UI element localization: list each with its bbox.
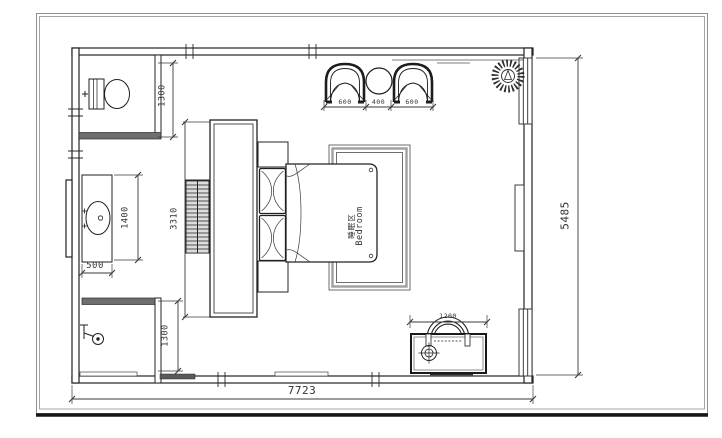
side-table xyxy=(366,68,392,94)
dim-wardrobe-length: 3310 xyxy=(171,197,182,241)
nightstand-top xyxy=(258,142,288,167)
dim-armchair-left: 600 xyxy=(330,99,360,106)
wc-glass-partition xyxy=(79,133,161,140)
dim-shower-depth: 1300 xyxy=(162,314,173,358)
floorplan-canvas: 1300 1400 500 1300 3310 600 400 600 1200… xyxy=(0,0,722,438)
wall-top xyxy=(72,48,533,55)
window-upper xyxy=(519,58,532,124)
armchair-right xyxy=(394,64,432,102)
room-label: 睡眠区 Bedroom xyxy=(348,186,372,266)
wall-bottom xyxy=(72,376,533,383)
room-label-en: Bedroom xyxy=(356,186,365,266)
wardrobe xyxy=(210,120,257,317)
dim-armchair-right: 600 xyxy=(397,99,427,106)
pillow-2 xyxy=(260,216,286,261)
dim-wc-depth: 1300 xyxy=(159,74,170,118)
dim-side-table: 400 xyxy=(364,99,393,106)
window-lower xyxy=(519,309,532,376)
dim-overall-width: 7723 xyxy=(267,385,337,398)
pillow-1 xyxy=(260,169,286,214)
wall-left xyxy=(72,48,79,383)
nightstand-bottom xyxy=(258,261,288,292)
dim-vanity-width: 500 xyxy=(80,262,110,273)
dim-overall-depth: 5485 xyxy=(560,181,573,251)
sink-drain xyxy=(98,216,102,220)
toilet-bowl xyxy=(105,80,130,109)
wall-pilaster xyxy=(515,185,524,251)
toilet-tank xyxy=(89,79,104,109)
radiator-unit xyxy=(186,180,209,253)
dressing-table xyxy=(411,334,486,373)
wall-left-pier xyxy=(66,180,72,257)
dim-vanity-length: 1400 xyxy=(122,196,133,240)
vanity-sink xyxy=(82,175,112,262)
armchair-left xyxy=(326,64,364,102)
dim-dresser-width: 1200 xyxy=(433,313,463,320)
shower-glass-partition xyxy=(82,298,155,305)
